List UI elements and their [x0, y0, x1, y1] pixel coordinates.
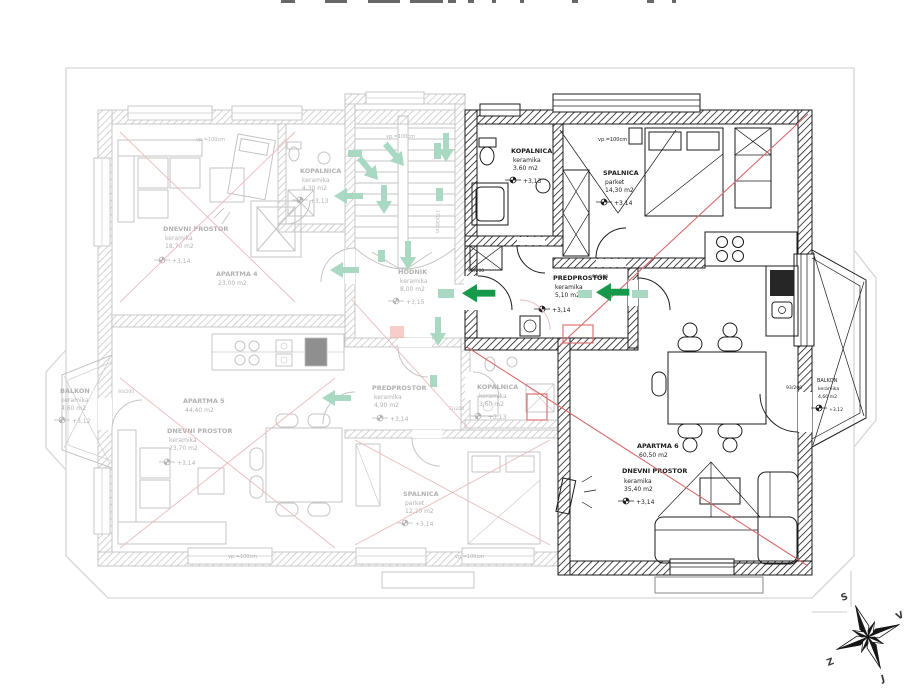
- svg-text:+3,14: +3,14: [552, 307, 571, 314]
- svg-text:14,30 m2: 14,30 m2: [605, 187, 634, 194]
- svg-text:DNEVNI PROSTOR: DNEVNI PROSTOR: [622, 467, 687, 475]
- svg-text:BALKON: BALKON: [60, 387, 90, 395]
- apartment6-dining: [652, 323, 766, 452]
- svg-text:+3,12: +3,12: [72, 418, 91, 425]
- svg-text:parket: parket: [605, 179, 625, 186]
- window-height-label: vp.=100cm: [228, 554, 257, 560]
- balcony-right: [812, 250, 866, 447]
- svg-text:keramika: keramika: [302, 177, 330, 184]
- compass-star: [824, 593, 913, 682]
- svg-text:4,60 m2: 4,60 m2: [818, 394, 837, 400]
- svg-text:+3,14: +3,14: [390, 416, 409, 423]
- svg-text:+3,13: +3,13: [523, 178, 542, 185]
- svg-text:keramika: keramika: [624, 478, 652, 485]
- svg-text:+3,14: +3,14: [415, 521, 434, 528]
- window-height-label: vp.=100cm: [598, 137, 627, 143]
- svg-text:3,60 m2: 3,60 m2: [513, 165, 538, 172]
- door-size-label: 93/200: [118, 389, 134, 395]
- svg-text:keramika: keramika: [513, 157, 541, 164]
- svg-text:3,60 m2: 3,60 m2: [479, 401, 504, 408]
- floor-plan-drawing: DNEVNI PROSTOR keramika 18,70 m2 +3,14 A…: [0, 0, 920, 690]
- svg-text:KOPALNICA: KOPALNICA: [300, 167, 341, 175]
- svg-text:4,30 m2: 4,30 m2: [302, 185, 327, 192]
- svg-text:keramika: keramika: [555, 284, 583, 291]
- svg-text:KOPALNICA: KOPALNICA: [511, 147, 552, 155]
- window-height-label: vp.=100cm: [386, 134, 415, 140]
- svg-text:keramika: keramika: [169, 437, 197, 444]
- compass-east-label: V: [894, 609, 906, 622]
- svg-text:KOPALNICA: KOPALNICA: [477, 383, 518, 391]
- svg-text:+3,14: +3,14: [614, 200, 633, 207]
- svg-text:+3,15: +3,15: [406, 299, 425, 306]
- bold-plan: KOPALNICA keramika 3,60 m2 +3,13 SPALNIC…: [464, 94, 866, 593]
- svg-text:HODNIK: HODNIK: [398, 268, 428, 276]
- svg-text:4,90 m2: 4,90 m2: [374, 402, 399, 409]
- svg-text:+3,14: +3,14: [177, 460, 196, 467]
- floor-plan-page: DNEVNI PROSTOR keramika 18,70 m2 +3,14 A…: [0, 0, 920, 690]
- svg-text:5,10 m2: 5,10 m2: [555, 292, 580, 299]
- compass-rose: S V Z J: [824, 591, 913, 685]
- svg-text:APARTMA 6: APARTMA 6: [637, 442, 679, 450]
- door-size-label: 93/200: [786, 385, 802, 391]
- svg-text:keramika: keramika: [61, 397, 89, 404]
- svg-text:+3,13: +3,13: [310, 198, 329, 205]
- shaft-label: 170/20cm: [434, 210, 440, 234]
- svg-text:35,40 m2: 35,40 m2: [624, 486, 653, 493]
- svg-text:+3,14: +3,14: [636, 499, 655, 506]
- svg-text:DNEVNI PROSTOR: DNEVNI PROSTOR: [167, 427, 232, 435]
- compass-west-label: Z: [825, 656, 835, 669]
- door-size-label: 90/200: [468, 268, 484, 274]
- exit-arrow-icon: [462, 283, 629, 302]
- apartment-label: APARTMA 4: [216, 270, 258, 278]
- svg-text:SPALNICA: SPALNICA: [603, 169, 639, 177]
- svg-text:SPALNICA: SPALNICA: [403, 490, 439, 498]
- svg-text:12,20 m2: 12,20 m2: [405, 508, 434, 515]
- svg-text:keramika: keramika: [165, 235, 193, 242]
- svg-text:60,50 m2: 60,50 m2: [639, 452, 668, 459]
- svg-text:8,00 m2: 8,00 m2: [400, 286, 425, 293]
- svg-text:4,60 m2: 4,60 m2: [61, 405, 86, 412]
- window-height-label: vp.=100cm: [455, 554, 484, 560]
- svg-text:+3,13: +3,13: [488, 414, 507, 421]
- svg-text:44,40 m2: 44,40 m2: [185, 407, 214, 414]
- apartment4-furniture: [118, 134, 330, 224]
- svg-text:23,70 m2: 23,70 m2: [169, 445, 198, 452]
- svg-text:keramika: keramika: [374, 394, 402, 401]
- svg-text:PREDPROSTOR: PREDPROSTOR: [372, 384, 427, 392]
- svg-text:BALKON: BALKON: [817, 378, 838, 384]
- door-size-label: 90/200: [592, 274, 608, 280]
- faded-walls: [94, 92, 565, 566]
- cropped-text-remnant: [281, 0, 676, 3]
- svg-text:23,00 m2: 23,00 m2: [218, 280, 247, 287]
- svg-text:+3,14: +3,14: [172, 258, 191, 265]
- svg-text:parket: parket: [405, 500, 425, 507]
- svg-text:keramika: keramika: [818, 386, 839, 392]
- window-height-label: vp.=100cm: [196, 137, 225, 143]
- svg-text:+3,12: +3,12: [829, 407, 843, 413]
- svg-text:keramika: keramika: [479, 393, 507, 400]
- compass-south-label: J: [879, 673, 886, 685]
- compass-north-label: S: [840, 591, 850, 604]
- bold-labels: KOPALNICA keramika 3,60 m2 +3,13 SPALNIC…: [468, 137, 843, 506]
- svg-text:APARTMA 5: APARTMA 5: [183, 397, 225, 405]
- svg-text:keramika: keramika: [400, 278, 428, 285]
